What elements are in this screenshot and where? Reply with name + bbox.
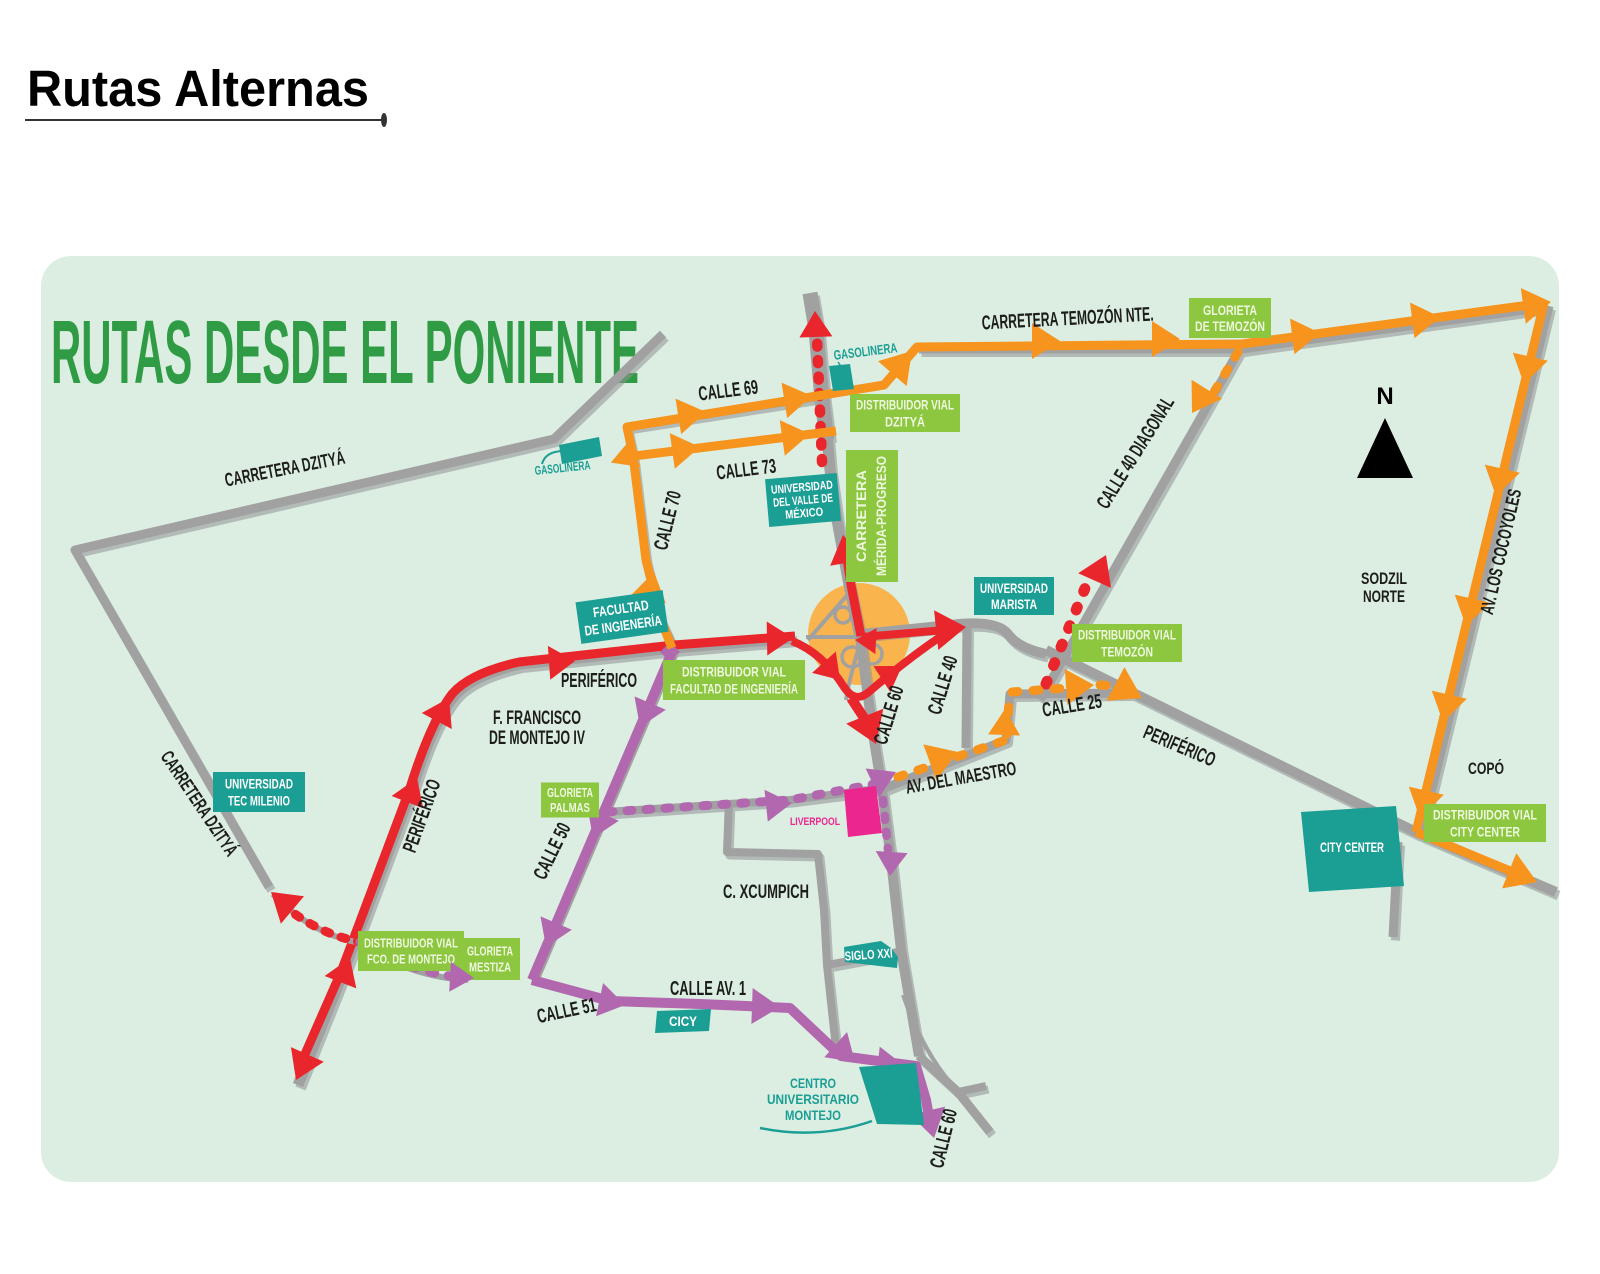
svg-text:DISTRIBUIDOR VIAL: DISTRIBUIDOR VIAL [364,936,458,951]
svg-text:CICY: CICY [669,1013,698,1029]
svg-text:N: N [1376,383,1393,410]
svg-text:DE MONTEJO IV: DE MONTEJO IV [489,728,585,749]
svg-text:DZITYÁ: DZITYÁ [885,413,925,429]
svg-text:FACULTAD DE INGENIERÍA: FACULTAD DE INGENIERÍA [670,680,798,696]
svg-text:TEC MILENIO: TEC MILENIO [228,792,290,808]
svg-text:DISTRIBUIDOR VIAL: DISTRIBUIDOR VIAL [682,663,786,679]
svg-text:TEMOZÓN: TEMOZÓN [1101,642,1153,659]
svg-text:LIVERPOOL: LIVERPOOL [790,816,840,828]
svg-text:PALMAS: PALMAS [550,800,590,815]
svg-text:NORTE: NORTE [1363,587,1405,606]
svg-text:UNIVERSIDAD: UNIVERSIDAD [225,775,293,791]
svg-text:GLORIETA: GLORIETA [467,944,513,959]
svg-text:CITY CENTER: CITY CENTER [1450,823,1520,839]
svg-text:PERIFÉRICO: PERIFÉRICO [561,669,637,692]
svg-text:CENTRO: CENTRO [790,1075,836,1091]
svg-text:CITY CENTER: CITY CENTER [1320,839,1384,855]
svg-text:DISTRIBUIDOR VIAL: DISTRIBUIDOR VIAL [1078,626,1176,642]
svg-text:CALLE AV. 1: CALLE AV. 1 [670,978,746,1000]
svg-text:MESTIZA: MESTIZA [469,960,511,975]
svg-text:CARRETERA: CARRETERA [853,470,869,562]
svg-text:DISTRIBUIDOR VIAL: DISTRIBUIDOR VIAL [1433,806,1537,822]
svg-text:MÉRIDA-PROGRESO: MÉRIDA-PROGRESO [873,456,889,576]
svg-text:RUTAS DESDE EL PONIENTE: RUTAS DESDE EL PONIENTE [51,303,639,403]
svg-text:UNIVERSIDAD: UNIVERSIDAD [980,580,1048,596]
svg-text:MARISTA: MARISTA [991,596,1037,612]
svg-text:MONTEJO: MONTEJO [785,1107,841,1123]
svg-text:FCO. DE MONTEJO: FCO. DE MONTEJO [367,952,455,967]
svg-text:C. XCUMPICH: C. XCUMPICH [723,882,809,903]
svg-text:DISTRIBUIDOR VIAL: DISTRIBUIDOR VIAL [856,396,954,412]
svg-text:Rutas Alternas: Rutas Alternas [27,60,369,117]
svg-text:COPÓ: COPÓ [1468,759,1504,778]
svg-text:UNIVERSITARIO: UNIVERSITARIO [767,1091,859,1107]
svg-text:GLORIETA: GLORIETA [547,785,593,800]
svg-text:GLORIETA: GLORIETA [1203,302,1257,318]
svg-text:DE TEMOZÓN: DE TEMOZÓN [1195,317,1265,334]
svg-text:F. FRANCISCO: F. FRANCISCO [493,708,581,729]
svg-text:SODZIL: SODZIL [1361,569,1407,588]
